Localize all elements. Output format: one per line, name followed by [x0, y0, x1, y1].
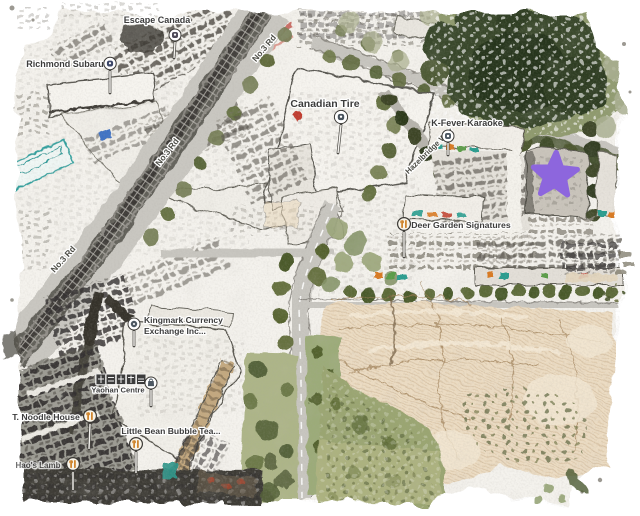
svg-text:Richmond Subaru: Richmond Subaru [26, 59, 104, 69]
svg-text:Little Bean Bubble Tea...: Little Bean Bubble Tea... [121, 426, 220, 436]
svg-text:Exchange Inc...: Exchange Inc... [144, 326, 206, 336]
svg-text:K-Fever Karaoke: K-Fever Karaoke [431, 118, 503, 128]
svg-text:T. Noodle House: T. Noodle House [12, 412, 80, 422]
svg-text:Yaohan Centre: Yaohan Centre [91, 386, 144, 395]
svg-text:Hao's Lamb: Hao's Lamb [15, 461, 60, 470]
svg-text:Canadian Tire: Canadian Tire [290, 98, 359, 110]
svg-text:Escape Canada: Escape Canada [124, 15, 192, 25]
svg-text:Deer Garden Signatures: Deer Garden Signatures [411, 220, 511, 230]
svg-text:Kingmark Currency: Kingmark Currency [144, 315, 223, 325]
